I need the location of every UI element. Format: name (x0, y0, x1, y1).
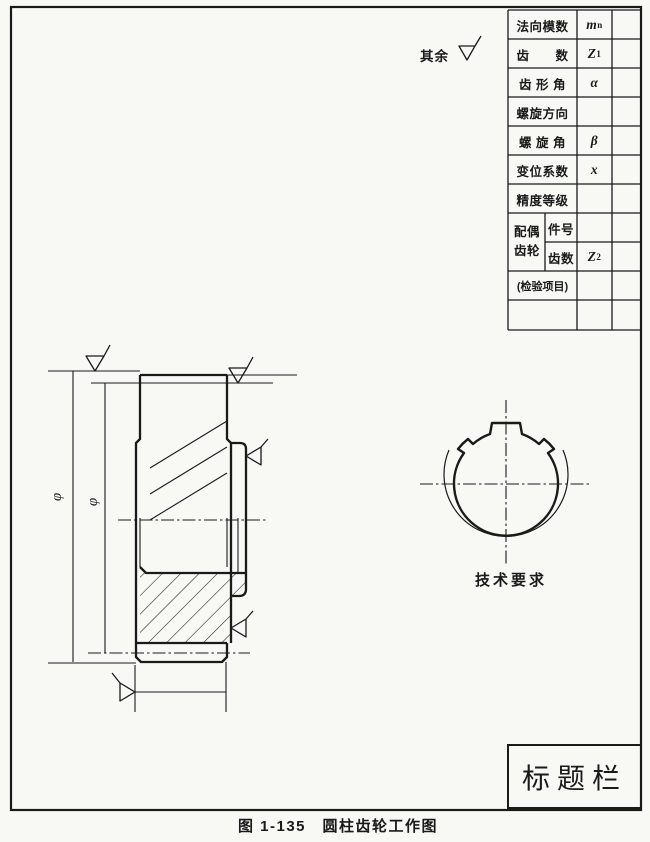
symbol-base: Z (588, 46, 597, 62)
mating-gear-line2: 齿轮 (514, 242, 540, 261)
gear-section-view (48, 371, 297, 712)
technical-requirements-label: 技术要求 (452, 568, 570, 590)
mating-gear-line1: 配偶 (514, 223, 540, 242)
param-label-mate-teeth: 齿数 (546, 243, 576, 271)
surface-symbol-icon (229, 357, 253, 383)
param-label-part-number: 件号 (546, 214, 576, 242)
param-symbol-mate-teeth: Z2 (578, 243, 611, 271)
param-label-profile-angle: 齿 形 角 (509, 69, 576, 97)
param-symbol-teeth-number: Z1 (578, 40, 611, 68)
param-symbol-profile-angle: α (578, 69, 611, 97)
surface-symbol-icon (86, 345, 110, 371)
symbol-base: x (591, 162, 598, 178)
symbol-base: β (591, 133, 598, 149)
surface-symbol-icon (112, 673, 135, 701)
surface-symbol-icon (246, 439, 268, 465)
param-label-mating-gear: 配偶 齿轮 (509, 214, 545, 270)
param-symbol-shift-coefficient: x (578, 156, 611, 184)
param-label-helix-direction: 螺旋方向 (509, 98, 576, 126)
param-label-shift-coefficient: 变位系数 (509, 156, 576, 184)
symbol-base: α (591, 75, 599, 91)
surface-symbol-icon (459, 36, 481, 60)
end-view-center-lines (420, 400, 592, 565)
param-label-helix-angle: 螺 旋 角 (509, 127, 576, 155)
title-block-label: 标题栏 (508, 745, 641, 808)
surface-rest-note: 其余 (420, 45, 449, 65)
gear-end-view (420, 400, 592, 565)
param-symbol-normal-module: mn (578, 11, 611, 39)
diameter-phi-label: φ (83, 492, 103, 512)
figure-caption: 图 1-135 圆柱齿轮工作图 (163, 814, 513, 836)
symbol-base: Z (588, 249, 597, 265)
symbol-base: m (586, 17, 597, 33)
surface-symbol-icon (231, 611, 253, 637)
param-label-inspection-items: (检验项目) (509, 272, 576, 300)
drawing-sheet: 法向模数 mn 齿 数 Z1 齿 形 角 α 螺旋方向 螺 旋 角 β 变位系数… (0, 0, 650, 842)
param-symbol-helix-angle: β (578, 127, 611, 155)
diameter-phi-label: φ (47, 487, 67, 507)
param-label-accuracy-grade: 精度等级 (509, 185, 576, 213)
param-label-normal-module: 法向模数 (509, 11, 576, 39)
param-label-teeth-number: 齿 数 (509, 40, 576, 68)
